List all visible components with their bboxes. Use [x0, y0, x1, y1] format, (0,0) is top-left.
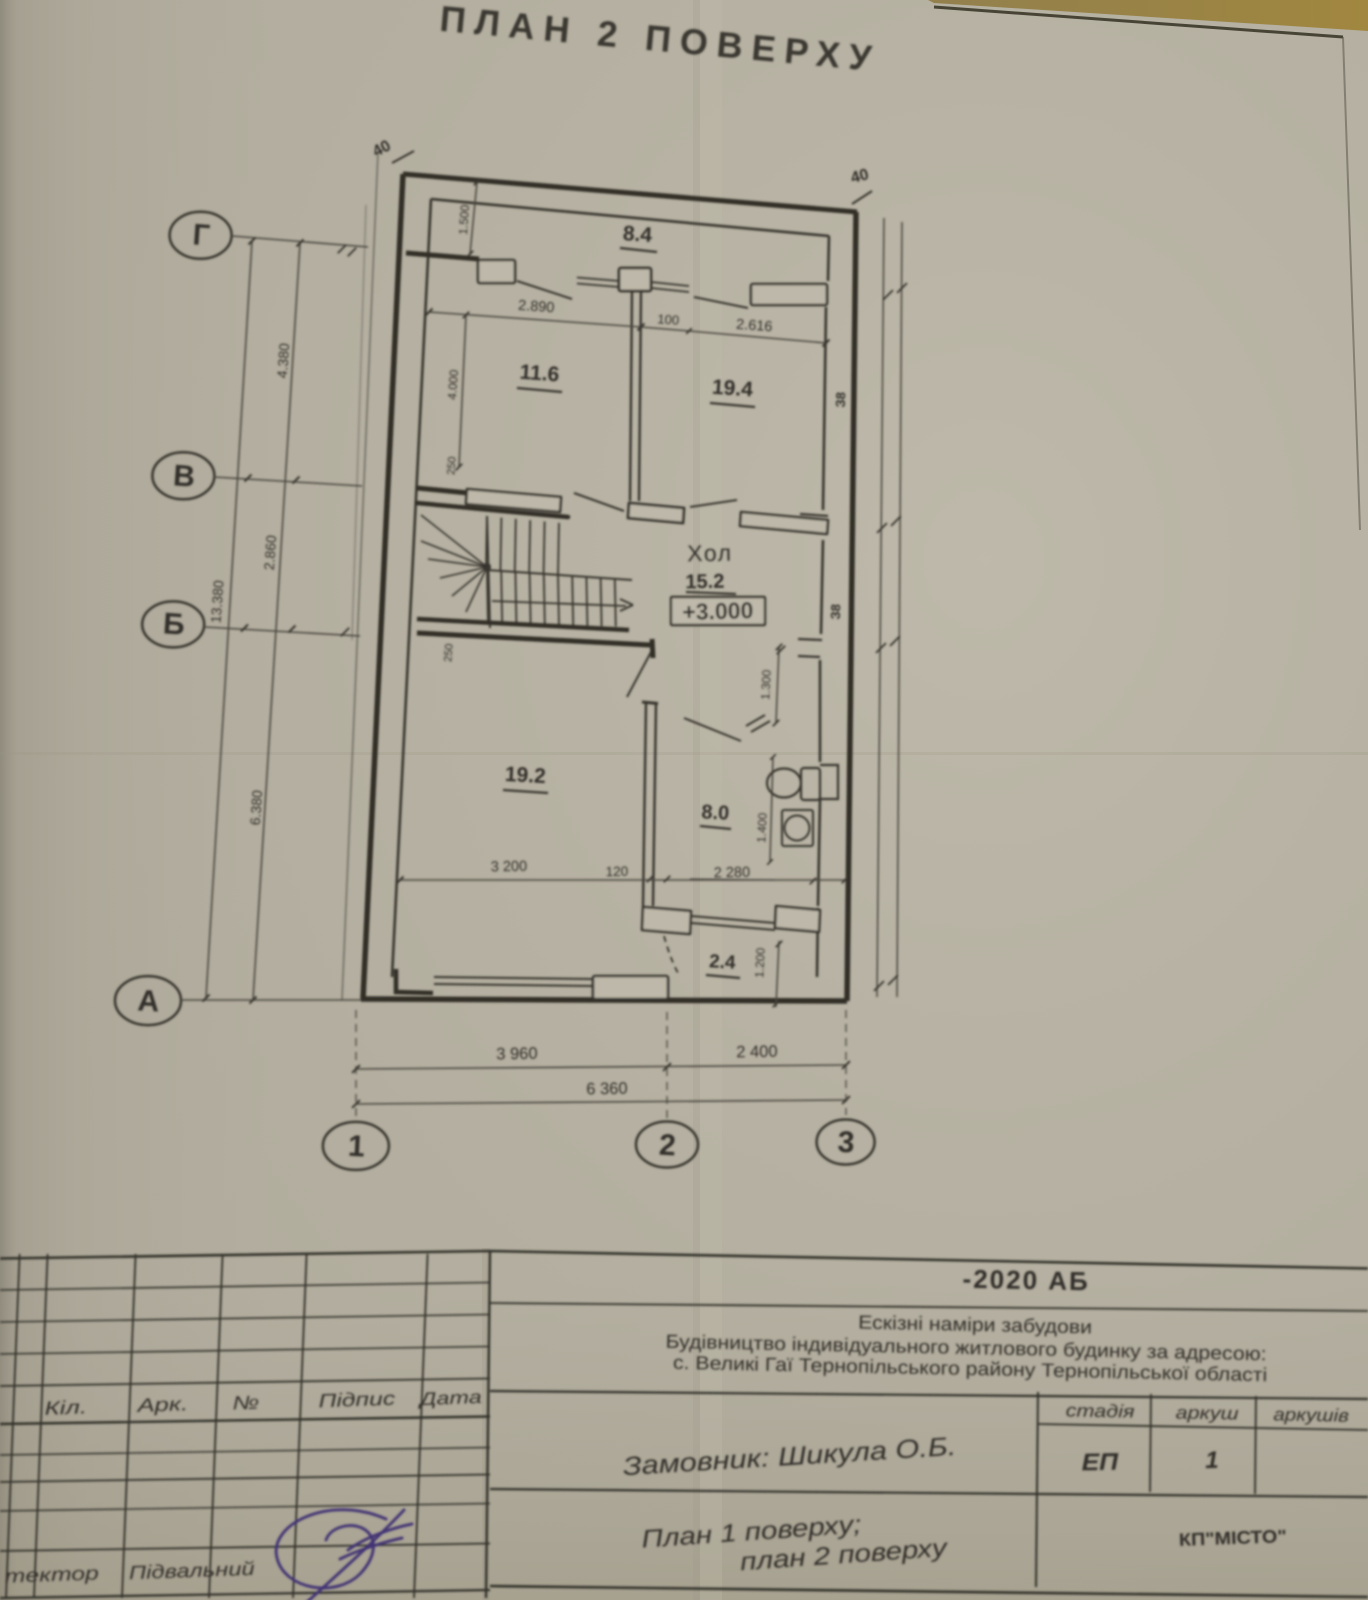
svg-text:З8: З8 — [828, 604, 844, 620]
svg-text:19.2: 19.2 — [504, 763, 546, 788]
svg-text:Підпис: Підпис — [318, 1387, 395, 1411]
svg-text:2: 2 — [658, 1129, 676, 1163]
svg-text:2 400: 2 400 — [736, 1043, 778, 1062]
svg-text:100: 100 — [657, 311, 680, 327]
svg-text:Підвальний: Підвальний — [129, 1558, 255, 1584]
svg-text:4.380: 4.380 — [274, 342, 292, 378]
svg-text:-2020 АБ: -2020 АБ — [962, 1264, 1090, 1297]
svg-text:2.616: 2.616 — [736, 317, 773, 335]
svg-text:6 360: 6 360 — [586, 1080, 628, 1099]
svg-text:1.200: 1.200 — [752, 947, 768, 978]
svg-text:В: В — [172, 459, 196, 493]
svg-text:З8: З8 — [833, 392, 849, 408]
svg-text:2.4: 2.4 — [709, 951, 737, 973]
svg-text:11.6: 11.6 — [519, 361, 560, 387]
svg-text:250: 250 — [445, 456, 458, 475]
svg-text:тектор: тектор — [4, 1562, 99, 1587]
svg-text:№: № — [232, 1391, 259, 1413]
svg-text:2.860: 2.860 — [261, 534, 279, 570]
svg-text:Г: Г — [192, 218, 211, 252]
svg-text:19.4: 19.4 — [711, 376, 754, 402]
svg-text:8.0: 8.0 — [701, 801, 730, 824]
svg-text:аркушів: аркушів — [1273, 1405, 1349, 1427]
svg-text:1.400: 1.400 — [754, 812, 770, 843]
svg-text:Б: Б — [162, 607, 186, 641]
svg-text:1: 1 — [1205, 1447, 1219, 1474]
svg-text:3: 3 — [837, 1126, 855, 1160]
svg-text:4.000: 4.000 — [445, 369, 461, 400]
svg-text:КП"МІСТО": КП"МІСТО" — [1179, 1527, 1287, 1551]
svg-text:Арк.: Арк. — [135, 1393, 189, 1416]
svg-text:Хол: Хол — [687, 540, 733, 567]
svg-text:1: 1 — [347, 1130, 365, 1164]
svg-text:8.4: 8.4 — [622, 222, 653, 247]
svg-text:1.500: 1.500 — [456, 204, 472, 235]
svg-text:+3.000: +3.000 — [682, 597, 754, 625]
svg-text:13.380: 13.380 — [208, 580, 227, 624]
svg-text:6.380: 6.380 — [247, 789, 265, 825]
svg-text:250: 250 — [442, 643, 455, 662]
svg-text:стадія: стадія — [1066, 1401, 1136, 1422]
svg-text:Дата: Дата — [417, 1387, 482, 1409]
svg-text:3 960: 3 960 — [496, 1045, 538, 1064]
svg-text:ЕП: ЕП — [1081, 1449, 1119, 1476]
svg-text:15.2: 15.2 — [685, 571, 724, 594]
svg-text:2.890: 2.890 — [518, 298, 555, 316]
svg-text:120: 120 — [606, 864, 629, 879]
svg-text:А: А — [137, 984, 160, 1018]
svg-text:3 200: 3 200 — [491, 859, 528, 876]
svg-text:аркуш: аркуш — [1175, 1403, 1239, 1424]
svg-text:1.300: 1.300 — [758, 669, 774, 700]
svg-text:Кіл.: Кіл. — [44, 1396, 87, 1419]
